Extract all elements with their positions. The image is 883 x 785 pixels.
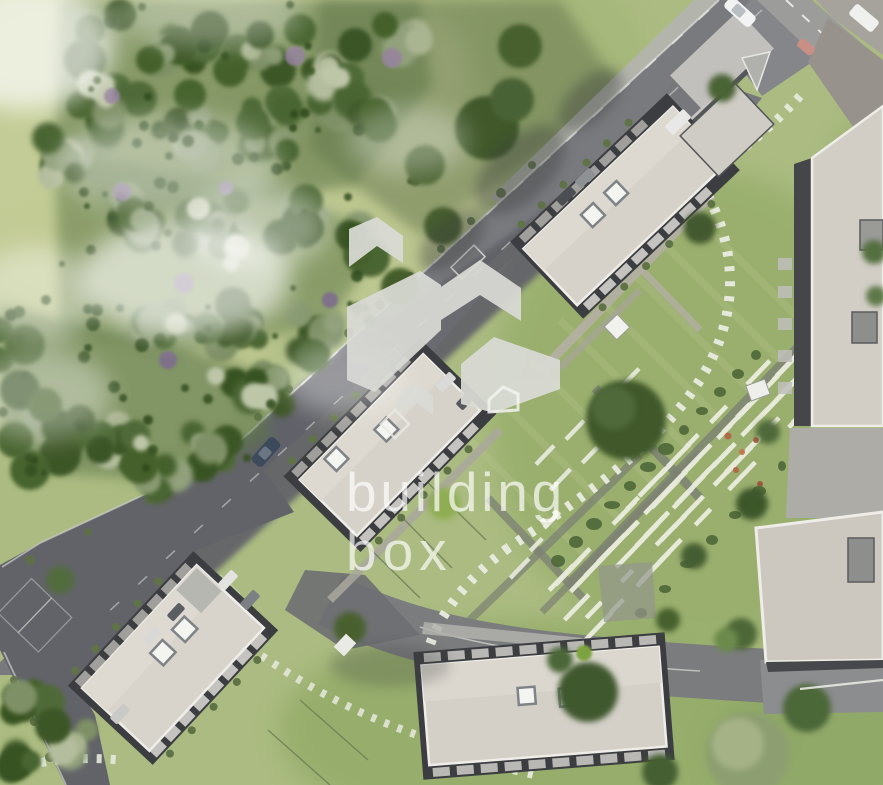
svg-text:box: box (346, 520, 453, 582)
svg-text:building: building (346, 461, 566, 523)
